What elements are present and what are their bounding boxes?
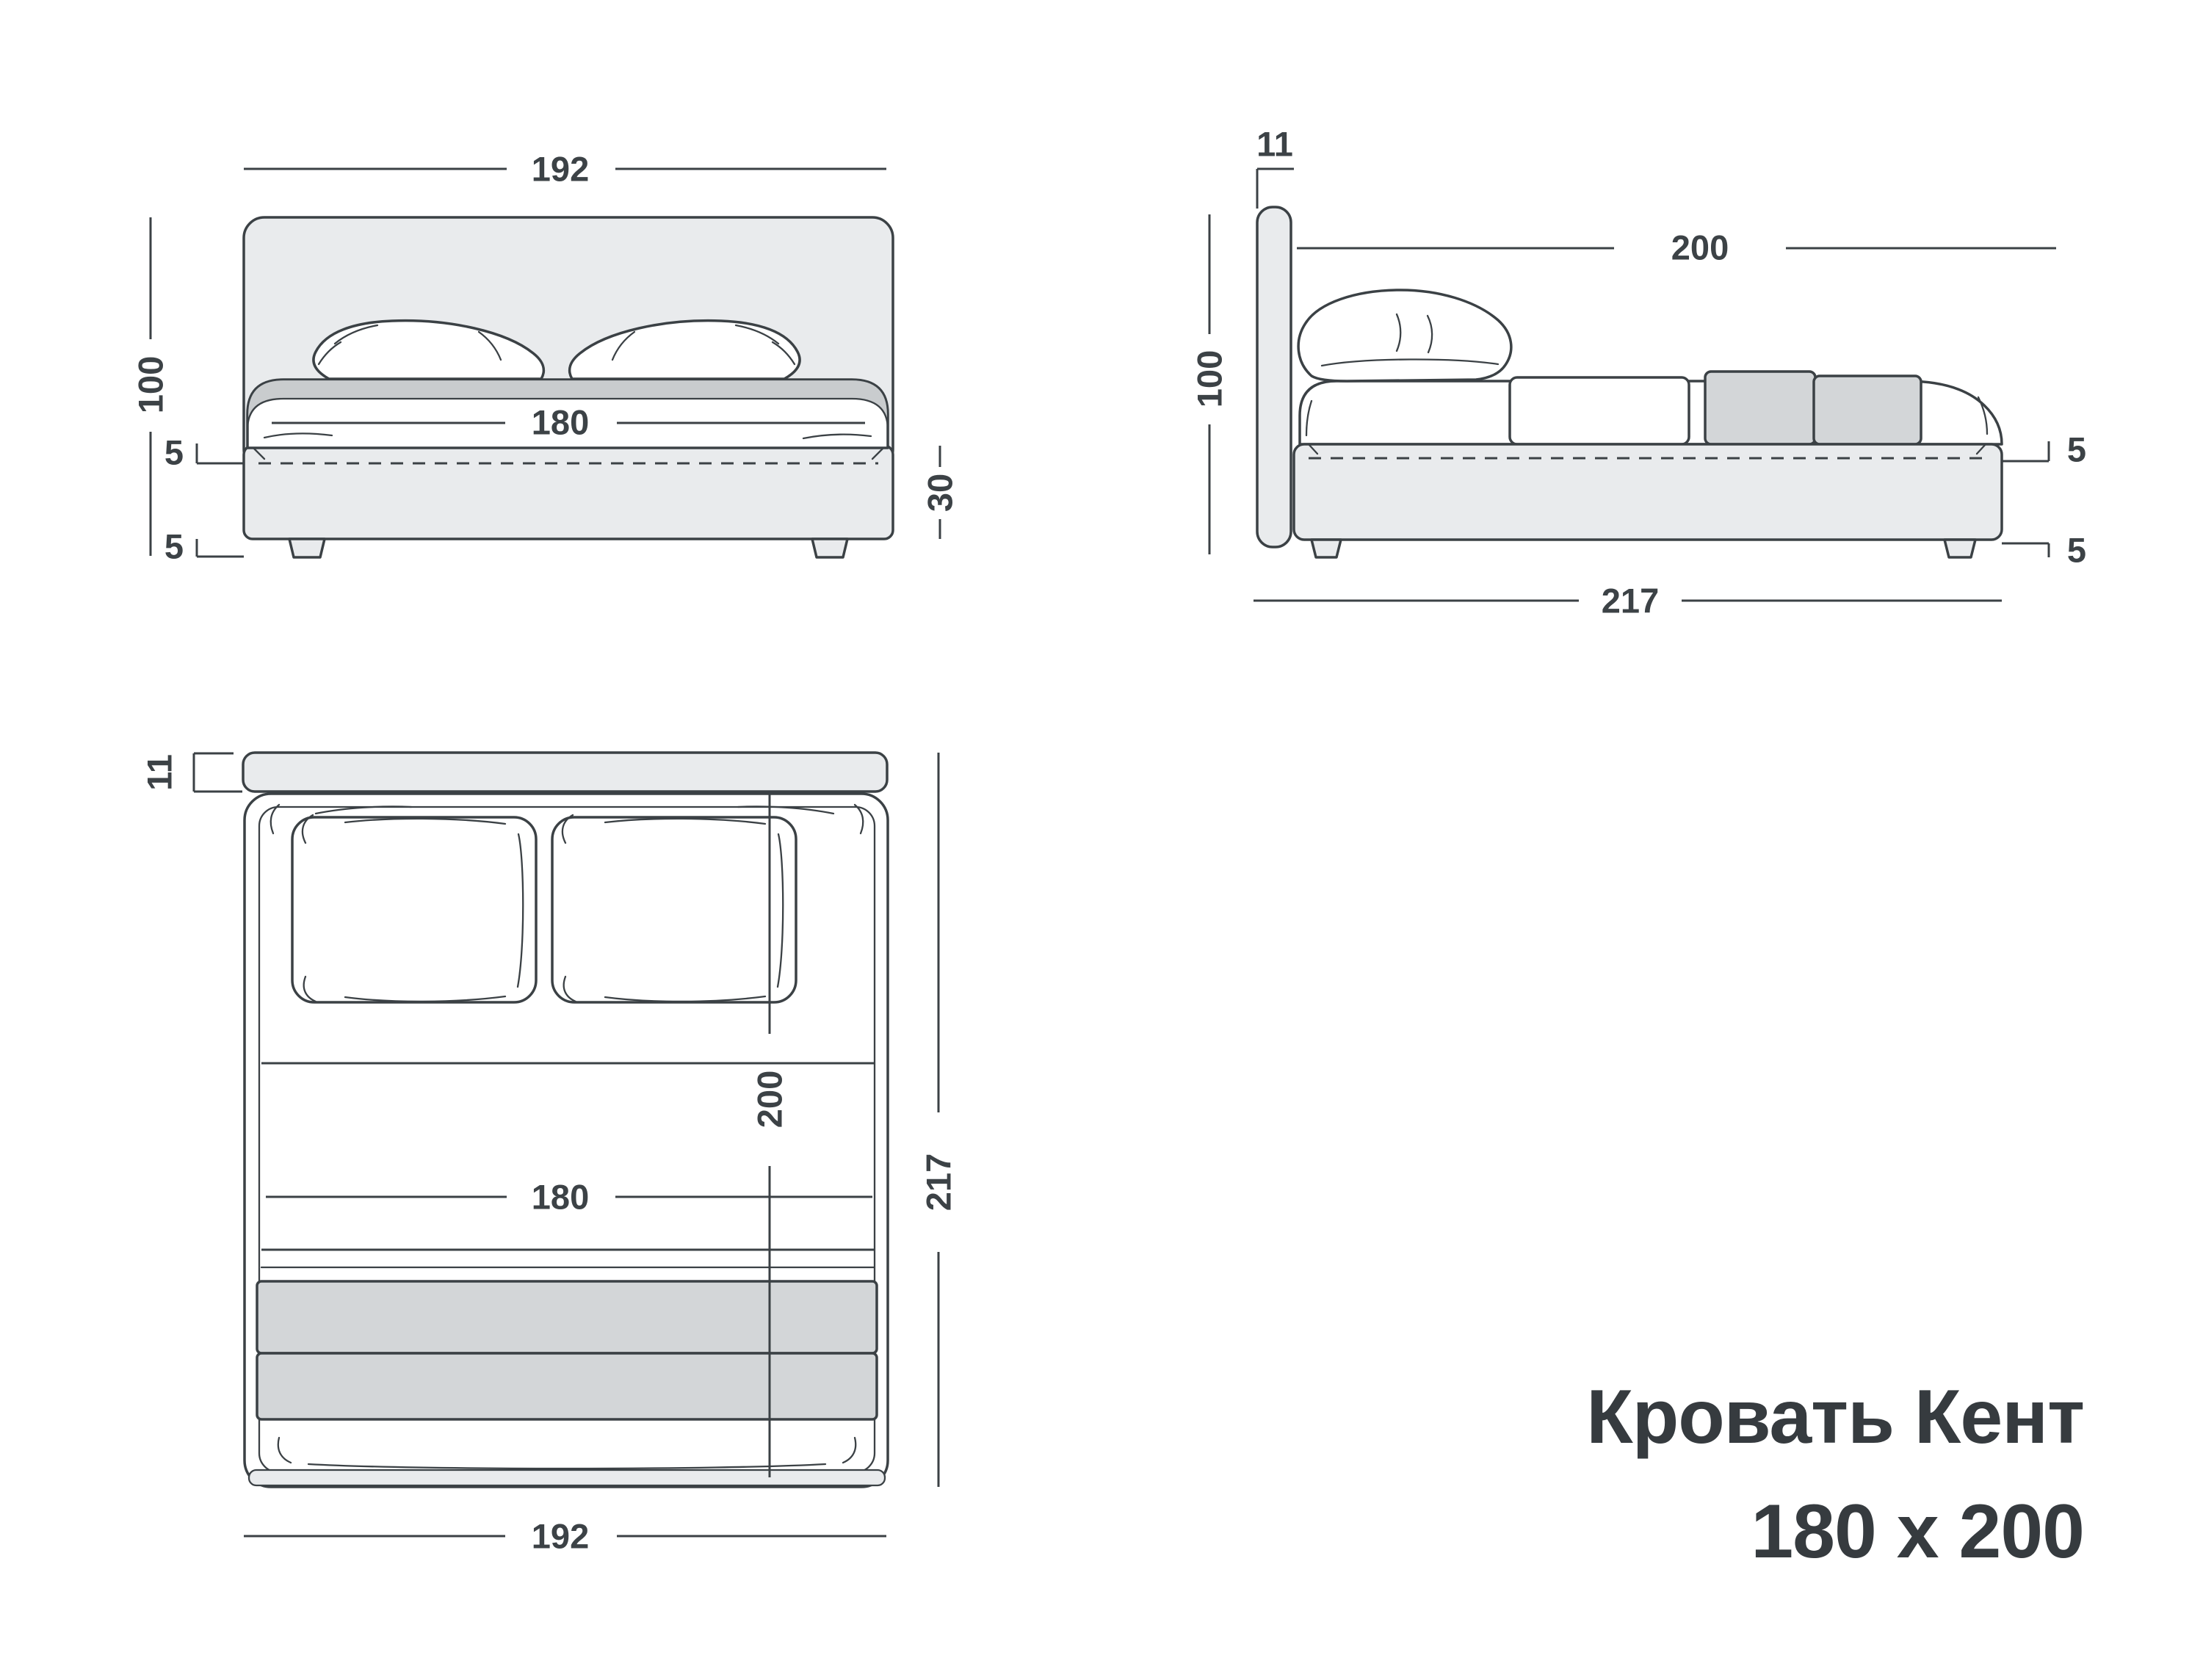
side-sheet xyxy=(1510,377,1689,444)
front-leg-dimension: 5 xyxy=(164,526,184,567)
front-view xyxy=(151,169,940,557)
product-title-size: 180 x 200 xyxy=(1586,1474,2084,1589)
side-headboard-bracket xyxy=(1257,169,1294,209)
top-blanket-2 xyxy=(257,1353,877,1419)
top-pillow-left xyxy=(292,815,536,1002)
side-mattress-length-dimension: 200 xyxy=(1671,228,1729,268)
side-leg-left xyxy=(1312,540,1341,557)
side-blanket-1 xyxy=(1705,372,1815,444)
side-view xyxy=(1209,169,2056,601)
top-headboard-thickness-dimension: 11 xyxy=(140,754,180,791)
front-height-dimension: 100 xyxy=(131,356,171,413)
front-base-height-dimension: 30 xyxy=(920,474,961,512)
front-width-dimension: 192 xyxy=(532,149,589,189)
front-leg-left xyxy=(289,539,325,557)
top-total-width-dimension: 192 xyxy=(532,1516,589,1557)
top-view xyxy=(194,753,938,1536)
top-frame-rim xyxy=(249,1470,885,1485)
top-total-length-dimension: 217 xyxy=(919,1154,959,1211)
side-leg-right xyxy=(1945,540,1975,557)
top-mattress-length-dimension: 200 xyxy=(750,1071,790,1128)
front-leg-right xyxy=(812,539,847,557)
side-leg-dimension: 5 xyxy=(2067,530,2086,571)
side-total-length-dimension: 217 xyxy=(1602,581,1659,621)
side-height-dimension: 100 xyxy=(1190,350,1230,408)
top-headboard xyxy=(243,753,887,792)
front-base xyxy=(244,446,893,539)
front-mattress-width-dimension: 180 xyxy=(532,402,589,443)
side-pillow xyxy=(1298,290,1511,381)
top-blanket-1 xyxy=(257,1281,877,1353)
front-platform-gap-dimension: 5 xyxy=(164,432,184,473)
side-headboard xyxy=(1257,207,1291,547)
top-mattress-width-dimension: 180 xyxy=(532,1177,589,1217)
side-headboard-thickness-dimension: 11 xyxy=(1256,124,1293,164)
blueprint-canvas: 192 100 5 5 180 30 11 200 100 5 5 217 11… xyxy=(0,0,2203,1680)
product-title-name: Кровать Кент xyxy=(1586,1360,2084,1474)
side-platform-gap-dimension: 5 xyxy=(2067,430,2086,470)
top-headboard-bracket xyxy=(194,753,242,792)
product-title: Кровать Кент 180 x 200 xyxy=(1586,1360,2084,1589)
top-pillow-right xyxy=(552,815,796,1002)
side-blanket-2 xyxy=(1814,376,1921,444)
